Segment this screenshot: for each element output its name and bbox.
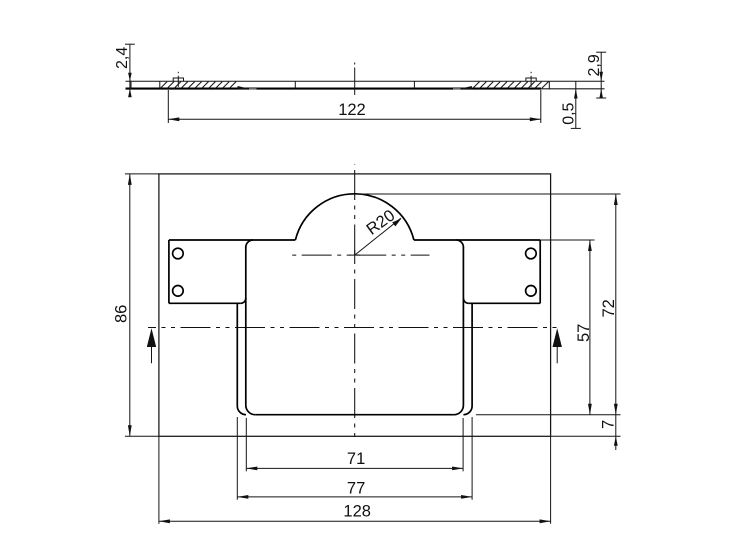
svg-text:2,4: 2,4 [114,47,131,69]
svg-text:57: 57 [575,324,593,342]
svg-text:86: 86 [113,305,131,323]
svg-text:77: 77 [347,480,365,498]
svg-text:0,5: 0,5 [561,102,578,124]
svg-text:71: 71 [347,450,365,468]
svg-text:122: 122 [338,101,366,119]
svg-text:2,9: 2,9 [586,54,603,76]
svg-text:128: 128 [343,503,371,521]
svg-text:72: 72 [600,299,618,317]
svg-text:7: 7 [600,420,618,429]
